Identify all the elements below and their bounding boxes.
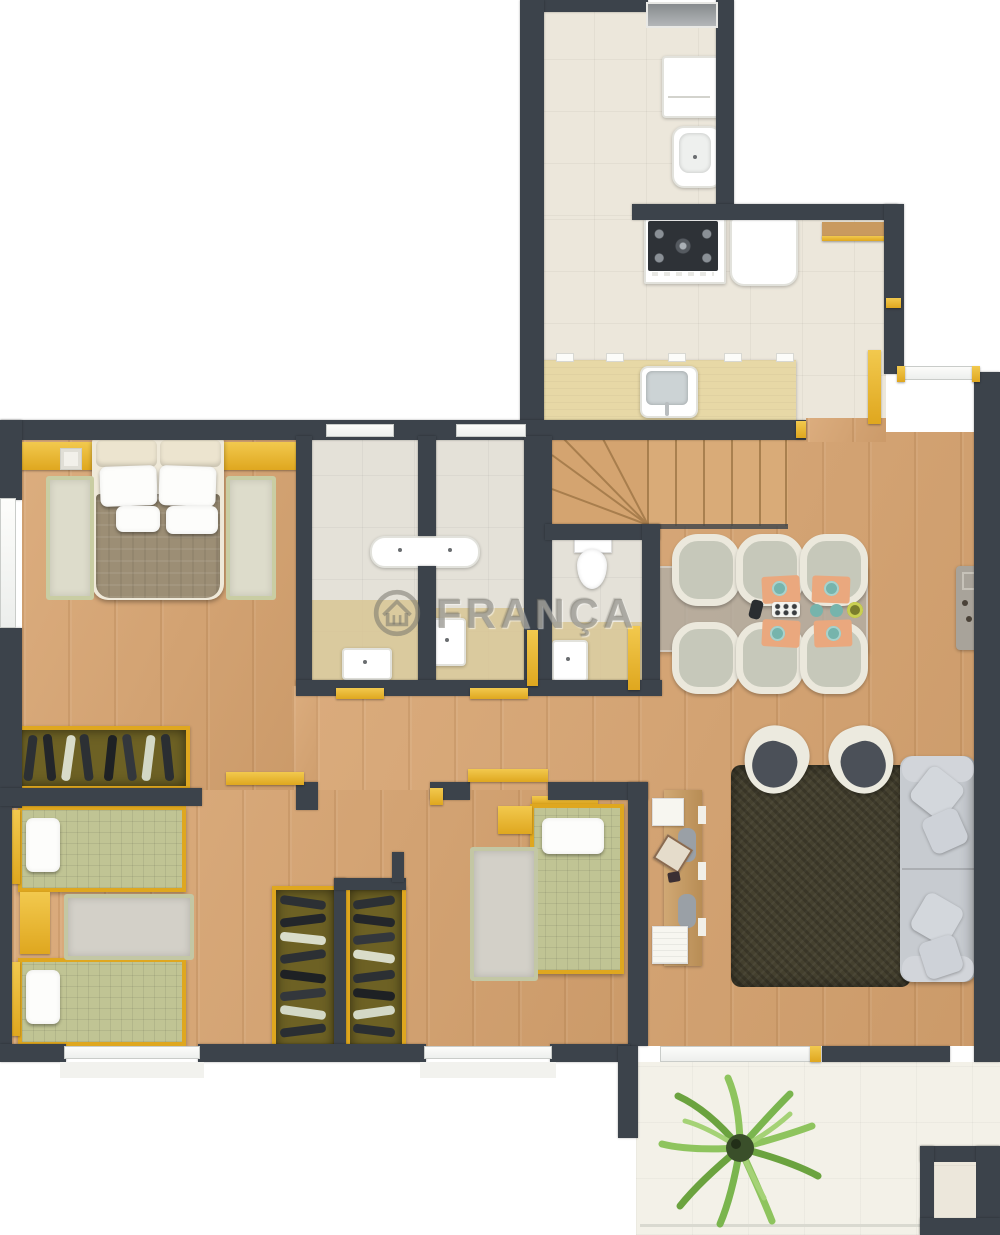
washing-machine — [662, 56, 720, 118]
master-bedroom-door — [226, 772, 304, 785]
garment — [43, 734, 57, 782]
wall-console-knob — [966, 616, 972, 622]
garment — [161, 734, 175, 782]
garment — [280, 895, 327, 910]
wall — [0, 628, 22, 808]
garment — [280, 988, 327, 1002]
wall — [296, 436, 312, 686]
wall — [528, 0, 648, 12]
wall — [642, 524, 660, 694]
wall — [0, 420, 806, 440]
kitchen-sink-faucet — [665, 402, 669, 416]
plate — [824, 581, 839, 596]
palm-plant — [640, 1066, 840, 1235]
bedroom3-window — [424, 1046, 552, 1059]
wall — [418, 436, 436, 536]
kitchen-door — [868, 350, 881, 424]
laundry-tub-drain — [693, 155, 697, 159]
cabinet-handle — [668, 353, 686, 362]
door-frame-cap — [810, 1046, 821, 1062]
garment — [104, 735, 118, 782]
wall — [0, 1044, 66, 1062]
paper-stack — [652, 798, 684, 826]
bathroom1-window — [326, 424, 394, 437]
bathroom2-door — [470, 688, 528, 699]
armchair-seat — [746, 736, 803, 794]
cabinet-handle — [776, 353, 794, 362]
bedroom2-window — [64, 1046, 200, 1059]
egg-tray — [772, 602, 800, 617]
bed-small-pillow — [166, 506, 218, 534]
headboard-cushion — [96, 440, 157, 467]
curtain-cap — [897, 366, 905, 382]
desk-item — [667, 871, 681, 883]
wall — [0, 420, 22, 500]
plate — [772, 581, 787, 596]
living-rug — [731, 765, 911, 987]
garment — [280, 932, 327, 946]
wall — [974, 372, 1000, 1062]
garment — [280, 1023, 327, 1038]
wall — [198, 1044, 426, 1062]
balcony-sliding-door — [660, 1046, 812, 1062]
cabinet-handle — [606, 353, 624, 362]
salad-dish — [847, 602, 863, 618]
wall — [392, 852, 404, 882]
headboard-panel — [222, 442, 298, 470]
desk-shelf-bracket — [698, 862, 706, 880]
twin-nightstand — [20, 892, 50, 954]
garment — [353, 1023, 396, 1037]
bed-pillow — [542, 818, 604, 854]
staircase — [552, 437, 788, 526]
vanity-faucet — [398, 548, 402, 552]
shower-drain — [566, 657, 570, 661]
desk-shelf-bracket — [698, 918, 706, 936]
bed-pillow — [158, 465, 216, 507]
garment — [353, 988, 396, 1001]
bathroom2-window — [456, 424, 526, 437]
bed-small-pillow — [116, 506, 160, 532]
nightstand — [60, 448, 82, 470]
wall — [296, 782, 318, 810]
garment — [280, 949, 327, 964]
wall — [822, 1046, 950, 1062]
vanity-faucet — [448, 548, 452, 552]
stove-cooktop — [648, 221, 718, 271]
garment — [79, 734, 94, 782]
garment — [353, 949, 396, 964]
wall — [884, 204, 904, 374]
vanity-counter — [370, 536, 480, 568]
garment — [353, 969, 396, 983]
garment — [23, 735, 38, 782]
living-room-window — [904, 366, 974, 380]
cabinet-handle — [556, 353, 574, 362]
wall — [0, 806, 12, 1046]
bedroom3-wardrobe — [346, 886, 406, 1054]
bowl — [830, 604, 843, 617]
wc-door — [628, 626, 640, 690]
wall — [418, 566, 436, 684]
window-sill — [60, 1062, 204, 1078]
bowl — [810, 604, 823, 617]
garment — [353, 1005, 396, 1020]
dining-chair — [672, 534, 740, 606]
wall — [716, 0, 734, 212]
stove-knob-strip — [652, 272, 714, 276]
desk-chair — [678, 894, 696, 928]
bed-pillow — [26, 818, 60, 872]
armchair-seat — [835, 736, 892, 794]
garment — [122, 734, 137, 782]
bedroom3-door — [468, 769, 548, 782]
plate — [826, 626, 841, 641]
garment — [353, 895, 396, 910]
plate — [770, 626, 785, 641]
bedroom2-rug — [64, 894, 194, 960]
garment — [61, 735, 76, 782]
door-frame-cap — [886, 298, 901, 308]
paper-stack — [652, 926, 688, 964]
garment — [280, 969, 327, 984]
bed-pillow — [99, 465, 157, 507]
garment — [280, 1005, 327, 1020]
dining-chair — [672, 622, 740, 694]
wall — [334, 878, 346, 1048]
bathroom2-door-panel — [527, 630, 538, 686]
wall — [920, 1218, 1000, 1235]
garment — [141, 735, 156, 782]
cabinet-handle — [724, 353, 742, 362]
bathroom2-basin — [432, 618, 466, 666]
garment — [353, 932, 396, 945]
bedside-rug — [226, 476, 276, 600]
desk-shelf-bracket — [698, 806, 706, 824]
wall — [520, 0, 544, 426]
master-wardrobe — [14, 726, 190, 790]
wall — [0, 788, 202, 806]
sofa-seam — [902, 868, 974, 870]
bedroom2-wardrobe — [272, 886, 338, 1054]
washing-machine-lid-line — [668, 96, 710, 98]
bed-headboard — [12, 810, 20, 884]
bedroom3-rug — [470, 847, 538, 981]
garment — [353, 913, 396, 927]
bedside-rug — [46, 476, 94, 600]
wall-console-knob — [962, 600, 968, 606]
headboard-panel — [18, 442, 94, 470]
shower-tray — [552, 640, 588, 682]
bathroom1-door — [336, 688, 384, 699]
door-frame-cap — [796, 421, 806, 438]
bed-pillow — [26, 970, 60, 1024]
garment — [280, 913, 327, 928]
curtain-cap — [972, 366, 980, 382]
shower-tray — [342, 648, 392, 680]
laundry-tub-basin — [679, 133, 711, 173]
basin-drain — [445, 638, 449, 642]
wall — [632, 204, 898, 220]
fridge — [730, 218, 798, 286]
wall — [618, 1046, 638, 1138]
bed-headboard — [12, 962, 20, 1036]
kitchen-sink-basin — [646, 371, 688, 405]
headboard-cushion — [160, 440, 221, 467]
wall — [628, 782, 648, 1046]
bedroom3-nightstand — [498, 806, 532, 834]
door-frame-cap — [430, 788, 443, 805]
shower-drain — [363, 660, 367, 664]
shaft-floor — [934, 1162, 976, 1218]
floor-plan: FRANÇA — [0, 0, 1000, 1235]
service-window — [646, 2, 718, 28]
window-sill — [420, 1062, 556, 1078]
master-bedroom-window — [0, 498, 16, 628]
